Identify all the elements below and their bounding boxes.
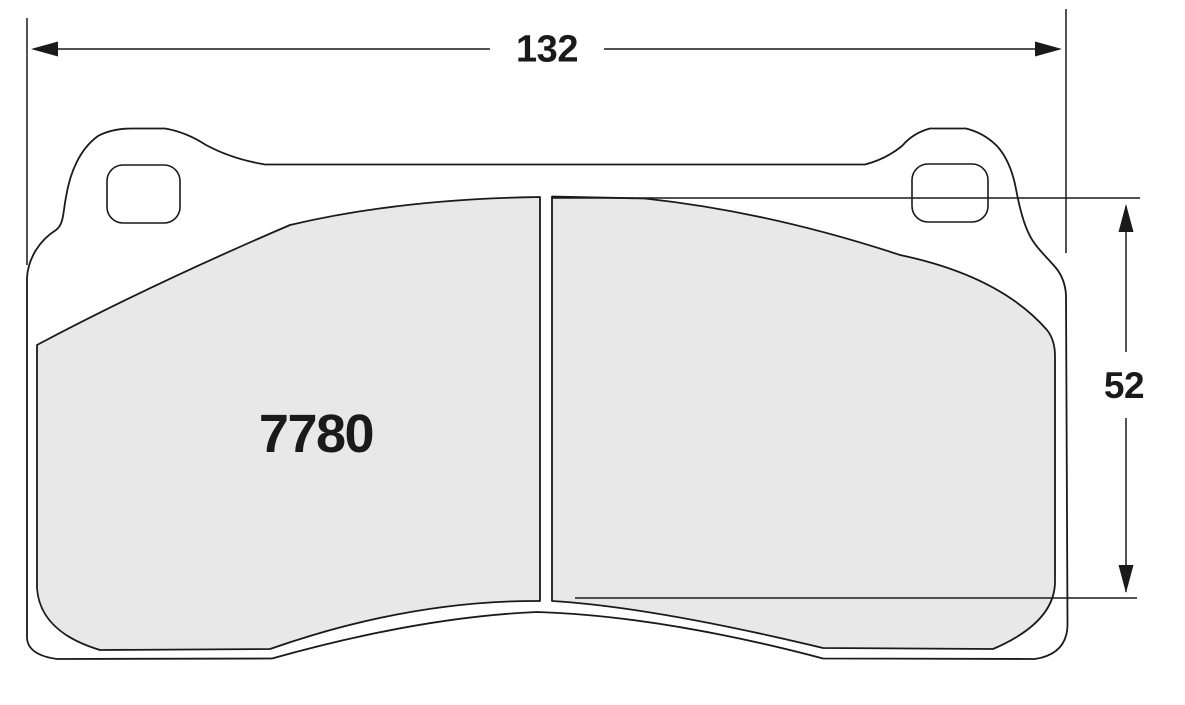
brake-pad-drawing: 132 52 7780 xyxy=(0,0,1185,705)
part-number-label: 7780 xyxy=(259,404,373,464)
down-arrowhead-icon xyxy=(1119,565,1134,593)
mounting-hole-right xyxy=(912,164,988,222)
up-arrowhead-icon xyxy=(1119,204,1134,232)
height-dim-label: 52 xyxy=(1104,365,1144,406)
mounting-hole-left xyxy=(107,165,180,223)
technical-drawing-svg: 132 52 7780 xyxy=(0,0,1185,705)
right-arrowhead-icon xyxy=(1035,42,1062,57)
width-dim-label: 132 xyxy=(516,29,578,71)
left-arrowhead-icon xyxy=(31,42,58,57)
